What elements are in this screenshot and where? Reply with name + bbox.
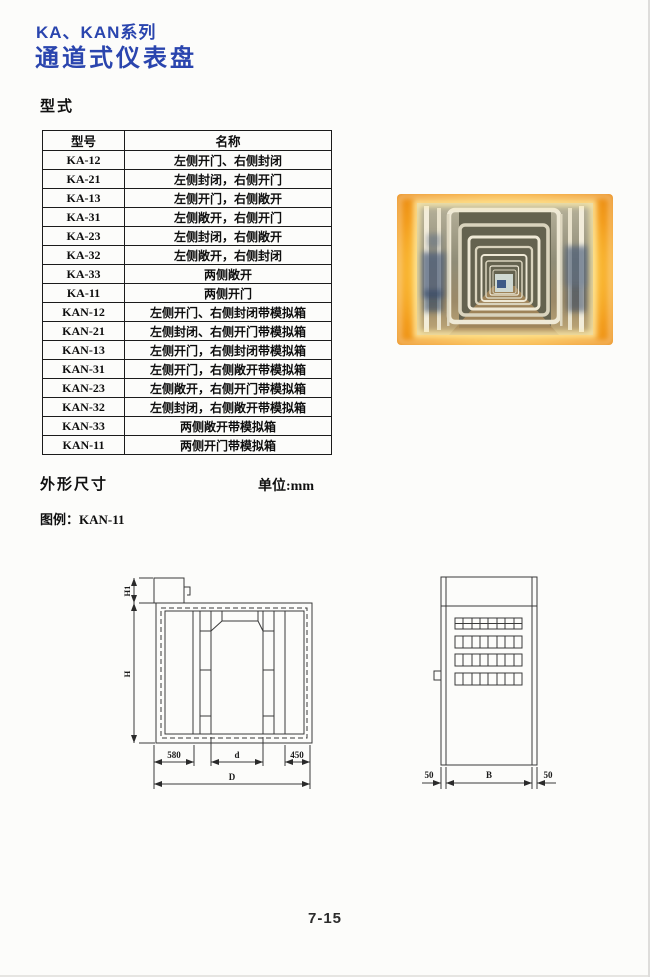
model-cell: KA-13 xyxy=(43,189,125,208)
name-cell: 左侧封闭，右侧敞开带模拟箱 xyxy=(125,398,332,417)
model-cell: KA-23 xyxy=(43,227,125,246)
name-cell: 左侧敞开，右侧开门带模拟箱 xyxy=(125,379,332,398)
page-title: 通道式仪表盘 xyxy=(35,38,197,73)
name-cell: 左侧开门，右侧敞开 xyxy=(125,189,332,208)
model-table: 型号 名称 KA-12左侧开门、右侧封闭 KA-21左侧封闭，右侧开门 KA-1… xyxy=(42,130,332,455)
name-cell: 左侧封闭，右侧开门 xyxy=(125,170,332,189)
model-cell: KAN-12 xyxy=(43,303,125,322)
table-header-row: 型号 名称 xyxy=(43,131,332,151)
table-row: KAN-11两侧开门带模拟箱 xyxy=(43,436,332,455)
name-cell: 左侧开门，右侧封闭带模拟箱 xyxy=(125,341,332,360)
model-cell: KAN-31 xyxy=(43,360,125,379)
table-row: KAN-32左侧封闭，右侧敞开带模拟箱 xyxy=(43,398,332,417)
section-heading-type: 型式 xyxy=(40,95,74,116)
model-cell: KAN-23 xyxy=(43,379,125,398)
table-row: KAN-12左侧开门、右侧封闭带模拟箱 xyxy=(43,303,332,322)
product-photo xyxy=(397,194,613,345)
table-row: KAN-21左侧封闭、右侧开门带模拟箱 xyxy=(43,322,332,341)
model-cell: KA-32 xyxy=(43,246,125,265)
name-cell: 两侧敞开 xyxy=(125,265,332,284)
column-header-name: 名称 xyxy=(125,131,332,151)
model-cell: KA-31 xyxy=(43,208,125,227)
name-cell: 左侧封闭，右侧敞开 xyxy=(125,227,332,246)
model-cell: KAN-33 xyxy=(43,417,125,436)
unit-label: 单位:mm xyxy=(258,475,314,495)
table-row: KA-23左侧封闭，右侧敞开 xyxy=(43,227,332,246)
name-cell: 左侧敞开，右侧封闭 xyxy=(125,246,332,265)
name-cell: 左侧开门、右侧封闭带模拟箱 xyxy=(125,303,332,322)
dim-label-D: D xyxy=(229,772,236,782)
dim-label-B: B xyxy=(486,770,492,780)
table-row: KA-13左侧开门，右侧敞开 xyxy=(43,189,332,208)
table-row: KAN-31左侧开门，右侧敞开带模拟箱 xyxy=(43,360,332,379)
name-cell: 两侧敞开带模拟箱 xyxy=(125,417,332,436)
table-row: KA-32左侧敞开，右侧封闭 xyxy=(43,246,332,265)
front-view-drawing xyxy=(134,578,312,789)
table-row: KA-33两侧敞开 xyxy=(43,265,332,284)
legend-label: 图例：KAN-11 xyxy=(40,509,125,528)
model-cell: KA-33 xyxy=(43,265,125,284)
dim-label-50-left: 50 xyxy=(425,770,435,780)
model-cell: KAN-32 xyxy=(43,398,125,417)
dimension-drawings-graphic: H1 H 580 d 450 D 50 B 50 xyxy=(95,556,575,800)
name-cell: 左侧开门，右侧敞开带模拟箱 xyxy=(125,360,332,379)
dim-label-h: H xyxy=(122,670,132,677)
side-view-drawing xyxy=(422,577,556,789)
name-cell: 两侧开门带模拟箱 xyxy=(125,436,332,455)
model-cell: KA-12 xyxy=(43,151,125,170)
table-row: KAN-33两侧敞开带模拟箱 xyxy=(43,417,332,436)
dimension-drawings: H1 H 580 d 450 D 50 B 50 xyxy=(95,556,575,800)
dim-label-580: 580 xyxy=(167,750,181,760)
product-photo-graphic xyxy=(397,194,613,345)
model-cell: KAN-11 xyxy=(43,436,125,455)
dim-label-50-right: 50 xyxy=(544,770,554,780)
table-row: KA-11两侧开门 xyxy=(43,284,332,303)
table-row: KAN-23左侧敞开，右侧开门带模拟箱 xyxy=(43,379,332,398)
section-heading-dimensions: 外形尺寸 xyxy=(40,473,108,494)
name-cell: 两侧开门 xyxy=(125,284,332,303)
dim-label-d: d xyxy=(234,750,239,760)
catalog-page: KA、KAN系列 通道式仪表盘 型式 型号 名称 KA-12左侧开门、右侧封闭 … xyxy=(0,0,650,977)
name-cell: 左侧封闭、右侧开门带模拟箱 xyxy=(125,322,332,341)
name-cell: 左侧开门、右侧封闭 xyxy=(125,151,332,170)
model-cell: KAN-13 xyxy=(43,341,125,360)
table-row: KAN-13左侧开门，右侧封闭带模拟箱 xyxy=(43,341,332,360)
dim-label-450: 450 xyxy=(290,750,304,760)
model-cell: KA-11 xyxy=(43,284,125,303)
model-cell: KA-21 xyxy=(43,170,125,189)
table-row: KA-31左侧敞开，右侧开门 xyxy=(43,208,332,227)
model-cell: KAN-21 xyxy=(43,322,125,341)
dim-label-h1: H1 xyxy=(122,586,132,597)
table-row: KA-12左侧开门、右侧封闭 xyxy=(43,151,332,170)
column-header-model: 型号 xyxy=(43,131,125,151)
page-number: 7-15 xyxy=(0,910,650,927)
name-cell: 左侧敞开，右侧开门 xyxy=(125,208,332,227)
table-row: KA-21左侧封闭，右侧开门 xyxy=(43,170,332,189)
